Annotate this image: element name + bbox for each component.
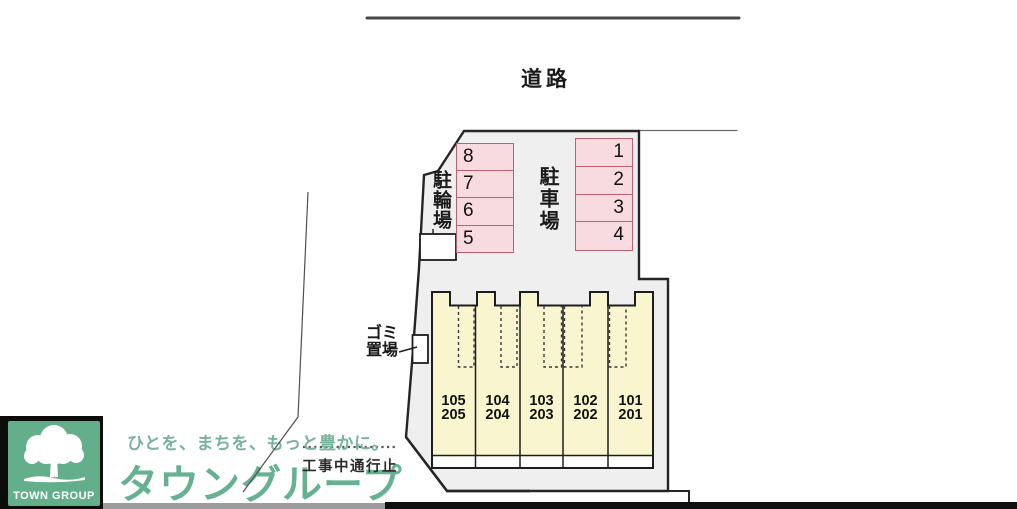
parking-stall-column-left: 8 7 6 5 bbox=[456, 143, 514, 253]
unit-number-1f: 103 bbox=[520, 394, 564, 408]
parking-stall-5: 5 bbox=[456, 225, 514, 254]
unit-number-1f: 101 bbox=[609, 394, 653, 408]
town-group-logo: TOWN GROUP bbox=[8, 421, 100, 506]
garbage-label-line1: ゴミ bbox=[366, 325, 398, 342]
garbage-label-line2: 置場 bbox=[366, 342, 398, 359]
unit-number-1f: 104 bbox=[476, 394, 520, 408]
unit-number-2f: 205 bbox=[432, 408, 476, 422]
building-outline bbox=[432, 292, 653, 468]
unit-number-2f: 202 bbox=[564, 408, 608, 422]
garbage-box bbox=[413, 335, 429, 363]
unit-label: 101 201 bbox=[609, 394, 653, 422]
bicycle-parking-box bbox=[420, 234, 456, 260]
parking-stall-2: 2 bbox=[575, 166, 633, 195]
unit-label: 105 205 bbox=[432, 394, 476, 422]
brand-tagline: ひとを、まちを、もっと豊かに。 bbox=[127, 429, 389, 454]
unit-label: 102 202 bbox=[564, 394, 608, 422]
unit-number-1f: 102 bbox=[564, 394, 608, 408]
garbage-area-label: ゴミ 置場 bbox=[366, 325, 398, 359]
bottom-black-bar bbox=[385, 502, 1017, 509]
parking-stall-4: 4 bbox=[575, 221, 633, 250]
parking-stall-6: 6 bbox=[456, 197, 514, 226]
unit-number-2f: 201 bbox=[609, 408, 653, 422]
parking-stall-3: 3 bbox=[575, 194, 633, 223]
unit-number-1f: 105 bbox=[432, 394, 476, 408]
unit-number-2f: 204 bbox=[476, 408, 520, 422]
logo-text: TOWN GROUP bbox=[8, 490, 100, 502]
parking-area-label: 駐車場 bbox=[533, 166, 562, 232]
unit-label: 103 203 bbox=[520, 394, 564, 422]
parking-stall-column-right: 1 2 3 4 bbox=[575, 138, 633, 251]
site-boundary-extension bbox=[668, 491, 689, 502]
bicycle-area-label: 駐輪場 bbox=[427, 170, 454, 230]
construction-notice: 工事中通行止 bbox=[302, 455, 398, 476]
site-plan-page: 道路 駐車場 駐輪場 ゴミ 置場 8 7 6 5 1 2 3 4 105 205… bbox=[0, 0, 1017, 509]
unit-number-2f: 203 bbox=[520, 408, 564, 422]
parking-stall-8: 8 bbox=[456, 143, 514, 172]
parking-stall-1: 1 bbox=[575, 138, 633, 167]
unit-label: 104 204 bbox=[476, 394, 520, 422]
road-label: 道路 bbox=[514, 63, 578, 93]
tree-icon bbox=[8, 421, 100, 487]
parking-stall-7: 7 bbox=[456, 170, 514, 199]
balcony-strip bbox=[433, 457, 652, 468]
